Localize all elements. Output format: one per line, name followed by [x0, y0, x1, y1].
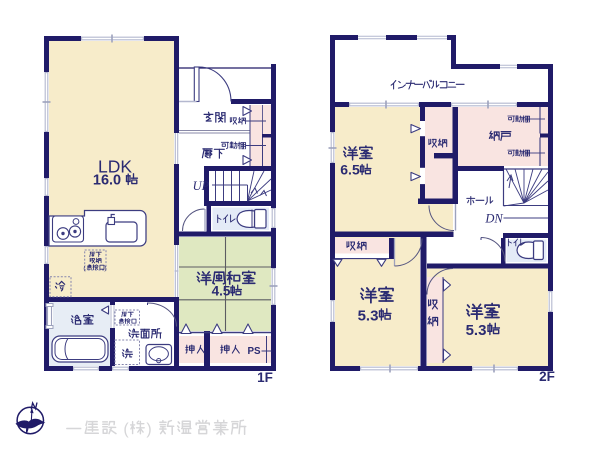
svg-text:): ) [146, 421, 151, 438]
svg-text:1F: 1F [257, 370, 273, 385]
svg-text:4.5: 4.5 [212, 284, 231, 299]
svg-text:5.3: 5.3 [466, 322, 487, 339]
svg-text:5.3: 5.3 [358, 308, 379, 325]
svg-text:2F: 2F [539, 369, 555, 384]
svg-text:UP: UP [193, 179, 210, 193]
svg-text:PS: PS [247, 346, 261, 357]
svg-text:16.0: 16.0 [93, 173, 121, 189]
svg-text:DN: DN [484, 212, 503, 226]
svg-text:): ) [104, 265, 106, 272]
svg-text:(: ( [123, 421, 129, 438]
svg-text:6.5: 6.5 [340, 162, 360, 178]
